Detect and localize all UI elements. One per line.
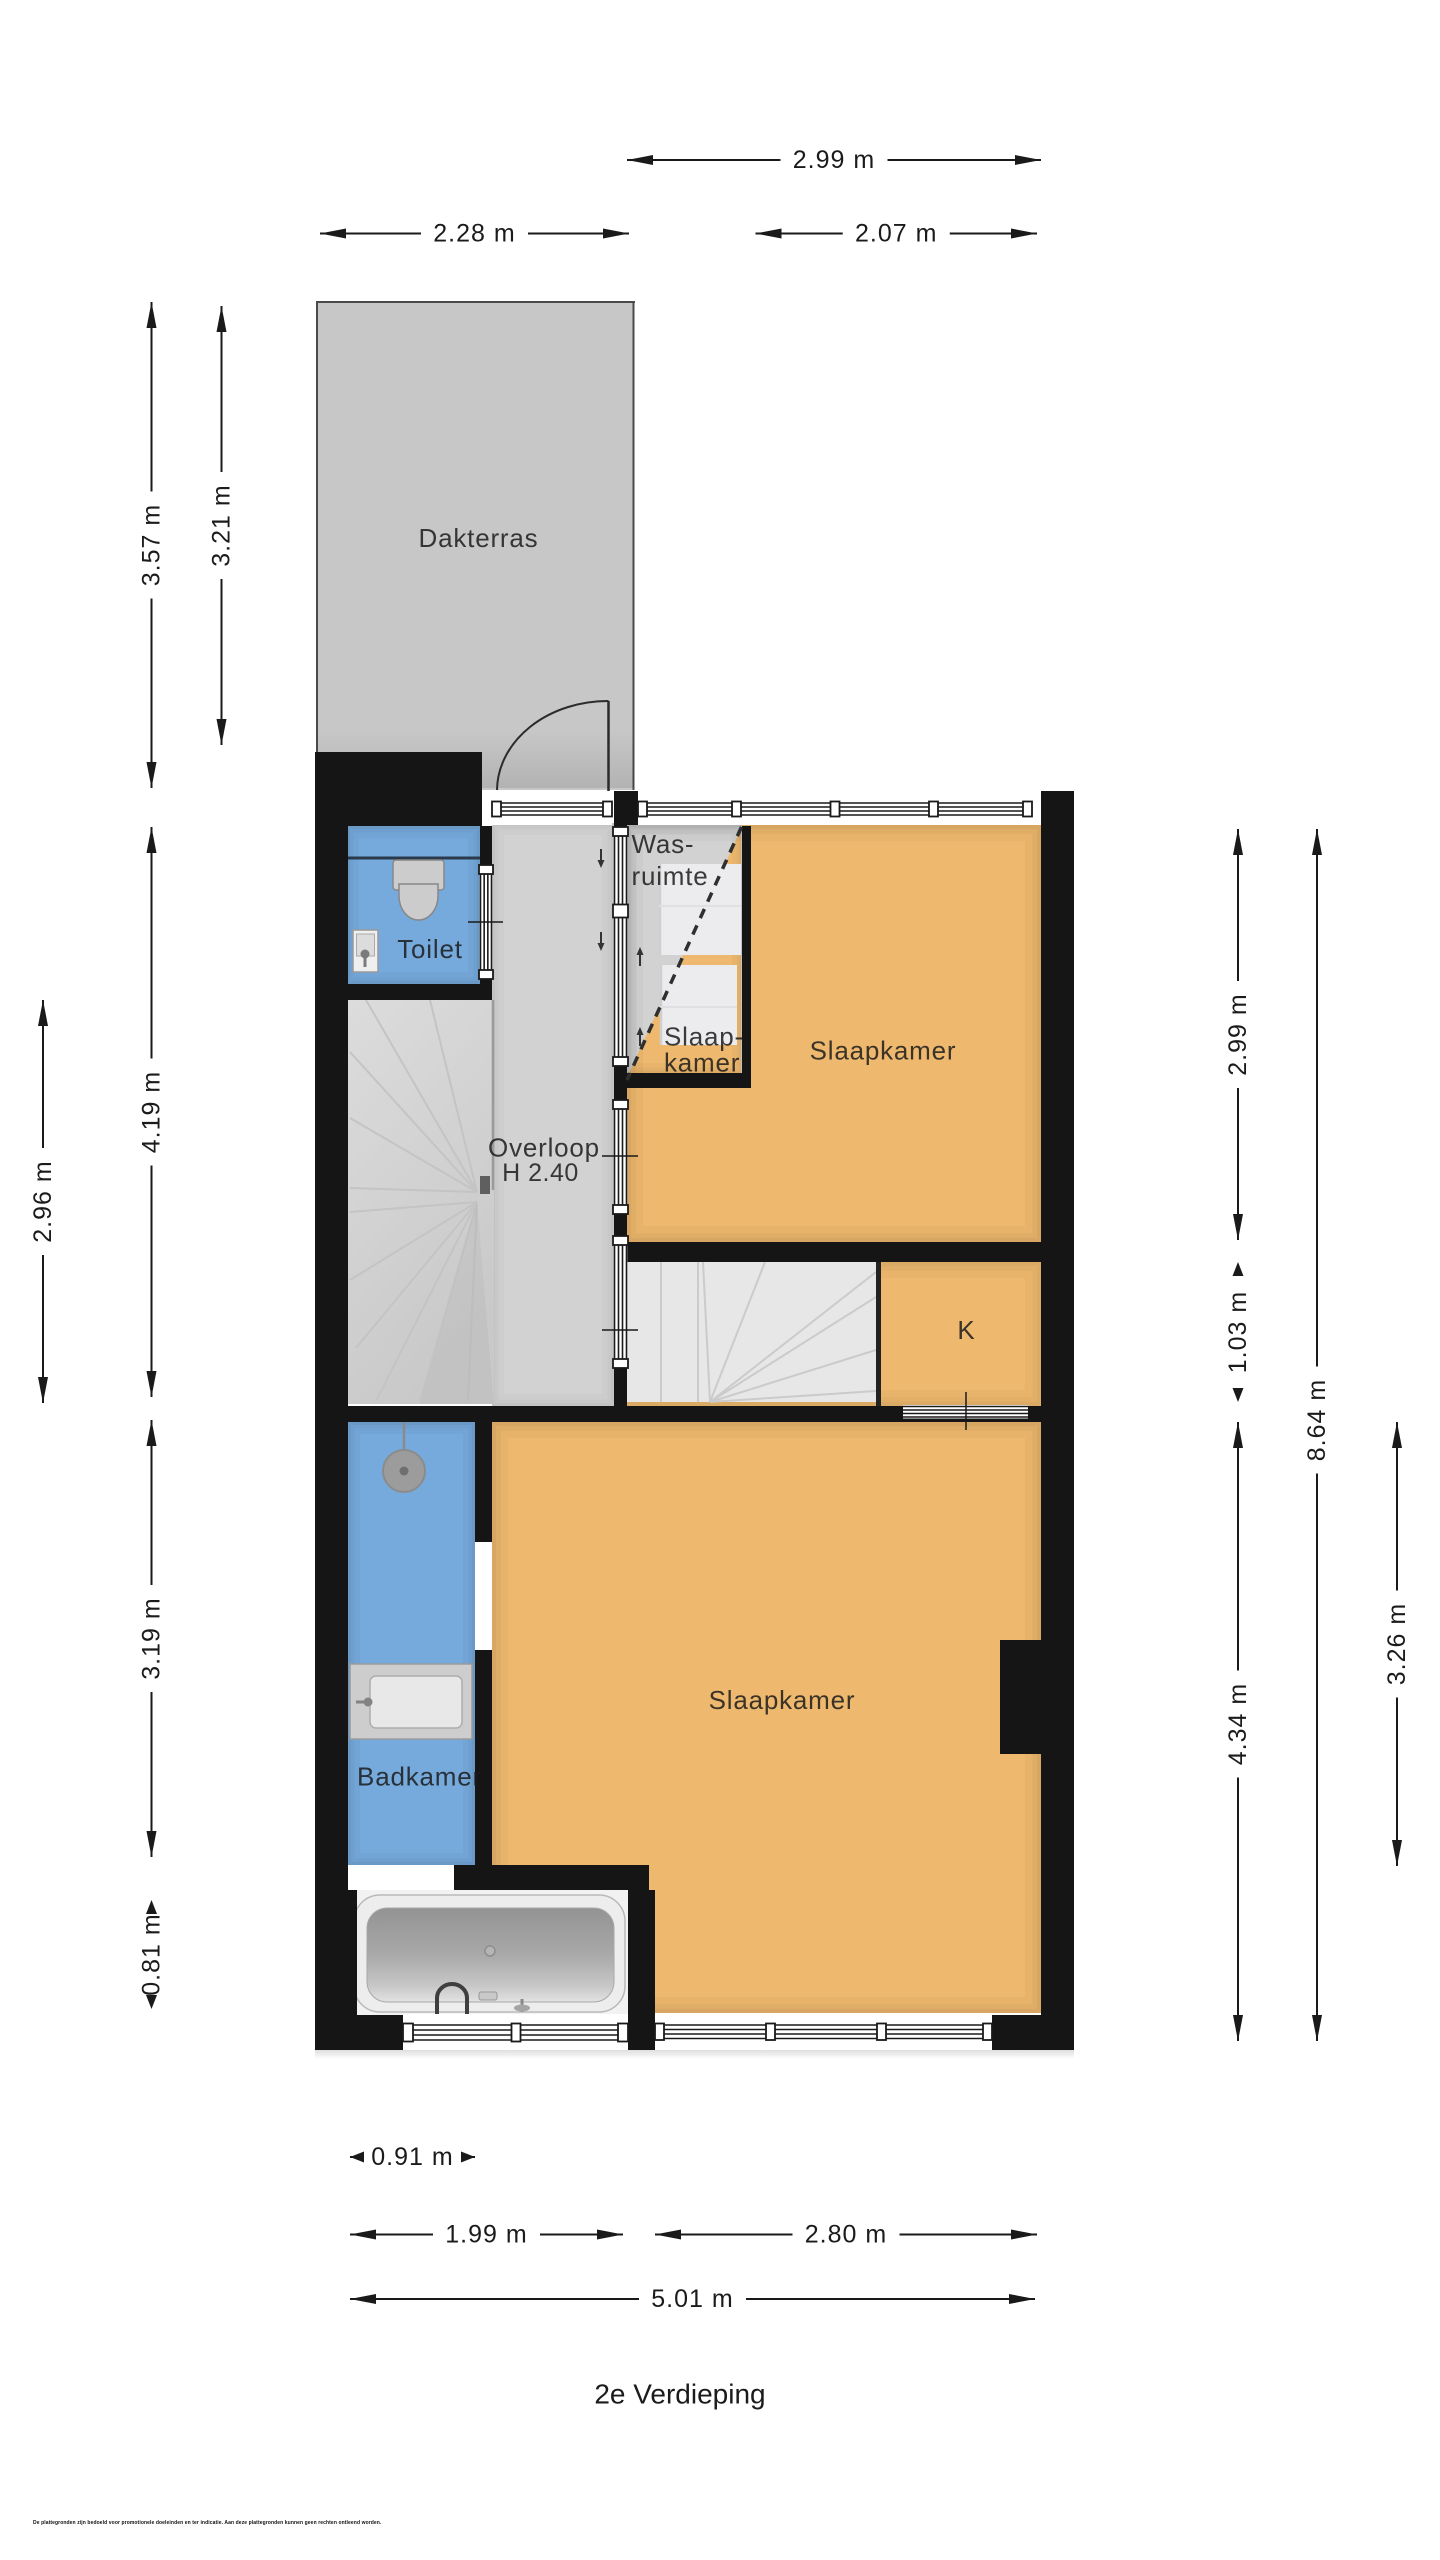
svg-text:3.19 m: 3.19 m bbox=[138, 1597, 166, 1679]
svg-text:1.03 m: 1.03 m bbox=[1224, 1291, 1252, 1373]
svg-text:3.26 m: 3.26 m bbox=[1383, 1603, 1411, 1685]
svg-text:2.96 m: 2.96 m bbox=[29, 1160, 57, 1242]
svg-text:Overloop: Overloop bbox=[488, 1133, 600, 1163]
svg-text:Badkamer: Badkamer bbox=[357, 1762, 482, 1792]
svg-text:8.64 m: 8.64 m bbox=[1303, 1379, 1331, 1461]
svg-text:Toilet: Toilet bbox=[397, 934, 463, 964]
svg-text:4.19 m: 4.19 m bbox=[138, 1071, 166, 1153]
svg-text:2.99 m: 2.99 m bbox=[1224, 993, 1252, 1075]
svg-text:Dakterras: Dakterras bbox=[419, 523, 539, 553]
svg-text:5.01 m: 5.01 m bbox=[651, 2285, 733, 2313]
svg-text:Slaapkamer: Slaapkamer bbox=[709, 1685, 856, 1715]
svg-text:3.57 m: 3.57 m bbox=[138, 504, 166, 586]
svg-text:0.91 m: 0.91 m bbox=[371, 2143, 453, 2171]
svg-text:H 2.40: H 2.40 bbox=[502, 1159, 579, 1187]
svg-text:2.99 m: 2.99 m bbox=[793, 146, 875, 174]
svg-text:K: K bbox=[957, 1315, 975, 1345]
svg-text:Was-: Was- bbox=[632, 829, 695, 859]
svg-text:4.34 m: 4.34 m bbox=[1224, 1683, 1252, 1765]
svg-text:2.28 m: 2.28 m bbox=[433, 220, 515, 248]
svg-text:2.80 m: 2.80 m bbox=[805, 2221, 887, 2249]
svg-text:Slaapkamer: Slaapkamer bbox=[810, 1036, 957, 1066]
svg-text:kamer: kamer bbox=[664, 1048, 740, 1078]
svg-text:2.07 m: 2.07 m bbox=[855, 220, 937, 248]
svg-text:2e Verdieping: 2e Verdieping bbox=[594, 2379, 765, 2410]
svg-text:ruimte: ruimte bbox=[632, 861, 709, 891]
svg-text:0.81 m: 0.81 m bbox=[138, 1913, 166, 1995]
svg-text:De plattegronden zijn bedoeld: De plattegronden zijn bedoeld voor promo… bbox=[33, 2520, 382, 2526]
svg-text:1.99 m: 1.99 m bbox=[445, 2221, 527, 2249]
svg-text:3.21 m: 3.21 m bbox=[208, 484, 236, 566]
